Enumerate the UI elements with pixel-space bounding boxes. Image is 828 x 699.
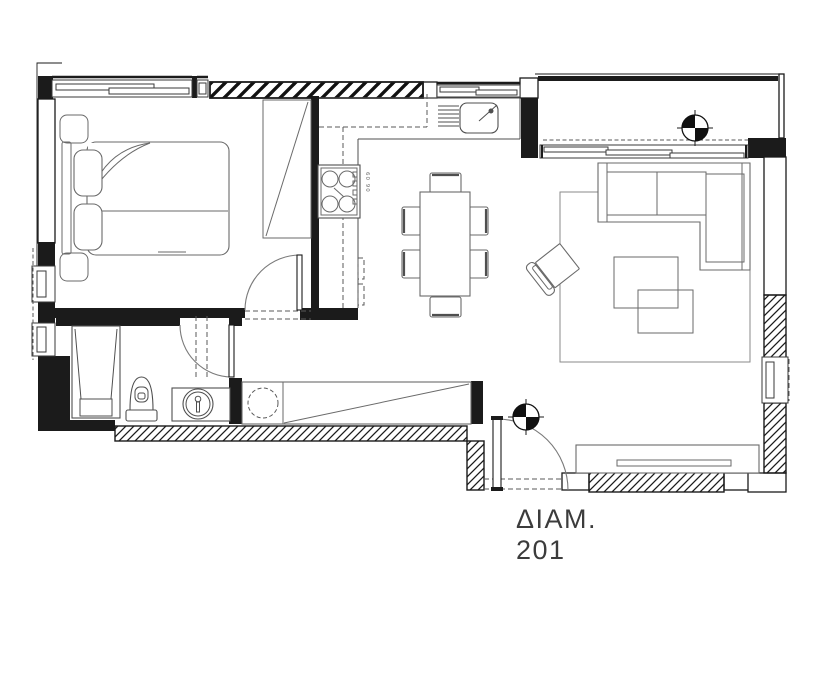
floor-plan-drawing: 60 90 (0, 0, 828, 699)
coffee-table-large (614, 257, 678, 308)
pillow (74, 204, 102, 250)
bedroom-window (52, 77, 208, 97)
dining-area (402, 173, 488, 317)
entry-hatched-wall (467, 441, 484, 490)
survey-symbol-balcony (677, 110, 713, 146)
dining-chair-west-1 (402, 207, 421, 235)
south-hatched-wall (115, 426, 467, 441)
living-room (525, 163, 759, 473)
bathroom-east-wall (229, 378, 242, 424)
bedroom-door (245, 255, 302, 310)
wardrobe (263, 100, 311, 238)
living-room-side-window (762, 357, 789, 403)
laundry-counter (242, 382, 471, 424)
bathroom-vanity (172, 388, 230, 421)
bedroom-side-window (32, 266, 55, 302)
toilet-tank (126, 410, 157, 421)
coffee-table-small (638, 290, 693, 333)
pillow (74, 150, 102, 196)
bathroom-north-wall (56, 318, 180, 326)
bathroom (72, 326, 230, 421)
bedroom (60, 100, 311, 281)
dining-chair-south (430, 297, 461, 317)
floor-plan-canvas: 60 90 (0, 0, 828, 699)
utility-area (242, 382, 471, 424)
armchair (525, 241, 581, 297)
headboard (62, 142, 71, 254)
stove-dimension-label: 60 90 (364, 172, 370, 193)
apartment-label-line1: ΔΙΑΜ. (516, 504, 597, 534)
east-hatched-wall-upper (764, 295, 786, 358)
kitchen-window (437, 83, 520, 97)
stove: 60 90 (318, 165, 370, 218)
dining-chair-east-1 (469, 207, 488, 235)
balcony-north-wall (538, 76, 778, 81)
north-hatched-wall (210, 82, 423, 98)
shower (72, 326, 120, 418)
balcony-east-edge (779, 74, 784, 138)
left-wall-band (38, 99, 55, 243)
east-hatched-wall-lower (764, 403, 786, 473)
kitchen-sink (438, 103, 498, 133)
dining-table (420, 192, 470, 296)
corner-sofa (598, 163, 750, 270)
tv-console (576, 445, 759, 473)
bedroom-south-wall (38, 308, 245, 318)
dining-chair-west-2 (402, 250, 421, 278)
kitchen-east-pier (521, 97, 538, 158)
dining-chair-north (430, 173, 461, 193)
bathroom-west-wall (38, 356, 70, 424)
nightstand (60, 115, 88, 143)
survey-symbol-entrance (508, 399, 544, 435)
bathroom-side-window (32, 323, 55, 356)
apartment-label: ΔΙΑΜ. 201 (516, 504, 597, 565)
basin (183, 389, 213, 419)
balcony-sliding-window (540, 145, 748, 158)
double-bed (62, 142, 229, 255)
dining-chair-east-2 (469, 250, 488, 278)
east-wall-upper (764, 157, 786, 295)
doors (180, 255, 568, 491)
nightstand (60, 253, 88, 281)
apartment-label-line2: 201 (516, 535, 566, 565)
toilet (126, 377, 157, 421)
south-east-hatched-wall (589, 472, 724, 492)
